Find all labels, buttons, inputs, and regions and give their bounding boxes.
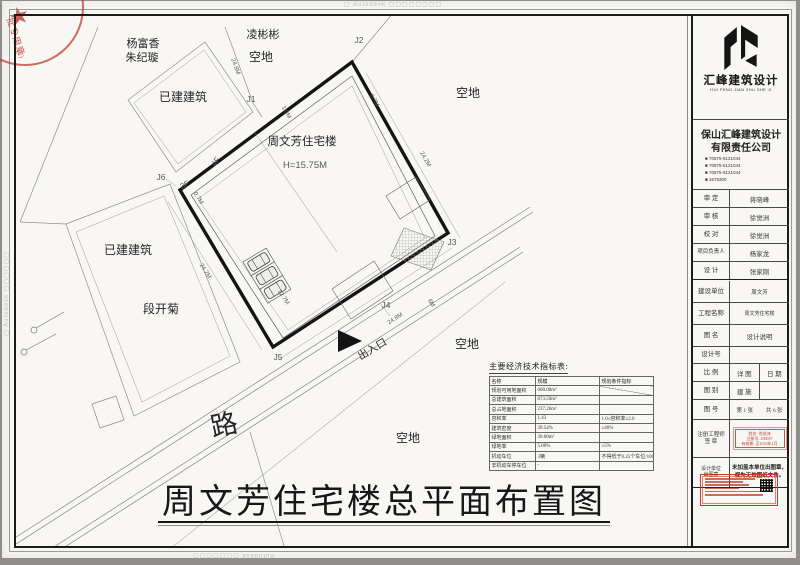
label-building-name: 周文芳住宅楼 [268, 134, 337, 148]
sheet-no-current: 第 1 张 [736, 406, 753, 414]
row-proofreader-label: 校 对 [693, 226, 730, 243]
cert-text-line [705, 481, 743, 483]
qr-code-icon [760, 479, 773, 492]
indicator-cell: 容积率 [490, 414, 536, 423]
row-client-value: 周文芳 [730, 281, 789, 302]
indicator-cell: 规划可用地面积 [490, 386, 536, 395]
point-j1: J1 [247, 94, 256, 104]
indicator-cell: 39.54% [536, 423, 600, 432]
label-existing-building-w: 已建建筑 [104, 242, 152, 257]
indicator-cell [600, 395, 654, 404]
indicator-cell: 30.00m² [536, 433, 600, 442]
title-block: 汇峰建筑设计 HUI FENG JIAN ZHU SHE JI 保山汇峰建筑设计… [691, 16, 787, 546]
logo-cell: 汇峰建筑设计 HUI FENG JIAN ZHU SHE JI [693, 16, 789, 120]
indicator-header-name: 名称 [490, 377, 536, 386]
row-designer-label: 设 计 [693, 262, 730, 279]
label-building-height: H=15.75M [283, 160, 327, 171]
phone-line: ■ 70875-6121044 [705, 156, 741, 163]
sheet-title: 周文芳住宅楼总平面布置图 [158, 474, 610, 523]
engineer-stamp: 姓名: 徐觉洲 注册号: 250037 有效期: 至2016年1月 [730, 420, 789, 457]
dim-south-edge: 24.8M [387, 312, 404, 326]
row-project-lead-value: 杨家龙 [730, 244, 789, 261]
sheet-title-underline [158, 521, 610, 523]
dim-ne-inset: 0.7M [368, 93, 380, 108]
row-sheet-no-label: 图 号 [693, 400, 730, 419]
indicator-cell: 600.00m² [536, 386, 600, 395]
row-reviewer-label: 审 核 [693, 208, 730, 225]
indicator-cell: 总建筑面积 [490, 395, 536, 404]
label-vacant-south-1: 空地 [455, 337, 479, 351]
survey-markers [21, 312, 64, 355]
row-design-no: 设计号 [693, 347, 789, 364]
row-project-name: 工程名称 周文芳住宅楼 [693, 303, 789, 325]
indicator-cell: ≥5% [600, 442, 654, 451]
cert-text-line [705, 494, 763, 496]
row-approver-value: 蒋晓峰 [730, 190, 789, 207]
indicator-table: 主要经济技术指标表: 名称 规模 规划条件指标 规划可用地面积 600.00m²… [489, 356, 657, 471]
logo-name: 汇峰建筑设计 [693, 72, 789, 88]
row-engineer-seal-label: 注册工程师 签 章 [693, 420, 730, 457]
phone-line: ■ 70875-6121044 [705, 163, 741, 170]
indicator-cell: 237.26m² [536, 405, 600, 414]
row-client-label: 建设单位 [693, 281, 730, 302]
point-j2: J2 [355, 35, 364, 45]
row-approver-label: 审 定 [693, 190, 730, 207]
site-boundary [180, 62, 448, 347]
row-proofreader-value: 徐觉洲 [730, 226, 789, 243]
row-project-name-value: 周文芳住宅楼 [730, 303, 789, 324]
indicator-cell [600, 433, 654, 442]
indicator-cell: 不得低于0.25个车位/100m² [600, 452, 654, 461]
label-existing-building-nw: 已建建筑 [159, 89, 207, 104]
indicator-cell: ≤40% [600, 423, 654, 432]
row-scale: 比 例 详 图 日 期 [693, 364, 789, 382]
label-vacant-north: 空地 [249, 50, 273, 64]
cert-text-line [705, 484, 749, 486]
row-engineer-seal: 注册工程师 签 章 姓名: 徐觉洲 注册号: 250037 有效期: 至2016… [693, 420, 789, 458]
row-scale-label: 比 例 [693, 364, 730, 381]
indicator-table-title: 主要经济技术指标表: [489, 361, 568, 374]
cert-text-line [705, 478, 755, 480]
indicator-cell: - [536, 461, 600, 470]
indicator-cell: 1.43 [536, 414, 600, 423]
row-category-extra [760, 382, 790, 399]
label-owner-nw-1: 杨富香 [127, 36, 160, 50]
row-project-lead: 项目负责人 杨家龙 [693, 244, 789, 262]
label-vacant-south-2: 空地 [396, 431, 420, 445]
cert-text-line [705, 488, 739, 490]
label-owner-nw-2: 朱纪璇 [126, 51, 159, 64]
dim-south-inset: 6M [426, 298, 436, 308]
dim-nw-edge: 24.8M [229, 58, 240, 76]
drawing-review-certificate [700, 474, 778, 506]
indicator-cell: 5.00% [536, 442, 600, 451]
engineer-label-line1: 注册工程师 [697, 432, 725, 439]
row-proofreader: 校 对 徐觉洲 [693, 226, 789, 244]
row-designer: 设 计 张家刚 [693, 262, 789, 280]
indicator-cell: 绿地面积 [490, 433, 536, 442]
company-phones: ■ 70875-6121044 ■ 70875-6121044 ■ 70875-… [705, 156, 741, 184]
row-drawing-name: 图 名 设计说明 [693, 325, 789, 347]
row-sheet-no-value: 第 1 张 共 6 张 [730, 400, 789, 419]
row-design-no-label: 设计号 [693, 347, 730, 363]
row-category-label: 图 别 [693, 382, 730, 399]
row-category: 图 别 建 施 [693, 382, 789, 400]
row-client: 建设单位 周文芳 [693, 281, 789, 303]
indicator-cell: 1.0≤容积率≤2.0 [600, 414, 654, 423]
indicator-cell: 绿地率 [490, 442, 536, 451]
row-project-name-label: 工程名称 [693, 303, 730, 324]
point-j4: J4 [382, 300, 391, 310]
phone-line: ■ 70875-6121044 [705, 170, 741, 177]
stamp-line: 有效期: 至2016年1月 [738, 441, 782, 446]
sheet-no-total: 共 6 张 [766, 406, 783, 414]
row-drawing-name-label: 图 名 [693, 325, 730, 346]
company-cell: 保山汇峰建筑设计 有限责任公司 ■ 70875-6121044 ■ 70875-… [693, 120, 789, 190]
row-designer-value: 张家刚 [730, 262, 789, 279]
label-road: 路 [208, 408, 241, 443]
drawing-sheet: ▢ Autodesk ▢▢▢▢▢▢▢▢ ▢ Autodesk ▢▢▢▢▢▢ ▢ … [0, 0, 800, 565]
seal-note-line1: 未加盖本单位出图章， [732, 465, 787, 472]
indicator-cell [600, 405, 654, 414]
engineer-stamp-box: 姓名: 徐觉洲 注册号: 250037 有效期: 至2016年1月 [735, 429, 785, 449]
indicator-cell: 非机动车停车位 [490, 461, 536, 470]
point-j3: J3 [448, 237, 457, 247]
row-project-lead-label: 项目负责人 [693, 244, 730, 261]
label-entrance: 出入口 [355, 335, 389, 362]
label-owner-west: 段开菊 [143, 301, 179, 316]
entrance-arrow-icon [338, 330, 362, 352]
dim-east-edge: 24.2M [418, 151, 432, 168]
row-category-value: 建 施 [730, 382, 760, 399]
logo-subtitle: HUI FENG JIAN ZHU SHE JI [693, 87, 789, 92]
row-scale-detail: 详 图 [730, 364, 760, 381]
engineer-label-line2: 签 章 [705, 439, 717, 446]
huifeng-logo-icon [719, 23, 763, 71]
point-j6: J6 [157, 172, 166, 182]
indicator-cell: 总占地面积 [490, 405, 536, 414]
row-drawing-name-value: 设计说明 [730, 325, 789, 346]
indicator-cell: 机动车位 [490, 452, 536, 461]
indicator-header-scale: 规模 [536, 377, 600, 386]
indicator-cell [600, 461, 654, 470]
dim-west-edge: 24.2M [198, 263, 212, 280]
label-neighbor-north: 凌彬彬 [247, 27, 280, 41]
point-j5: J5 [274, 352, 283, 362]
indicator-cell: 3辆 [536, 452, 600, 461]
sheet-title-underline-shadow [158, 525, 610, 526]
row-reviewer-value: 徐觉洲 [730, 208, 789, 225]
label-vacant-east: 空地 [456, 86, 480, 100]
indicator-cell: 873.59m² [536, 395, 600, 404]
row-approver: 审 定 蒋晓峰 [693, 190, 789, 208]
indicator-cell [600, 386, 654, 395]
row-design-no-value [730, 347, 789, 363]
row-sheet-no: 图 号 第 1 张 共 6 张 [693, 400, 789, 420]
row-reviewer: 审 核 徐觉洲 [693, 208, 789, 226]
company-name-line2: 有限责任公司 [693, 139, 789, 154]
indicator-cell: 建筑密度 [490, 423, 536, 432]
row-scale-date: 日 期 [760, 364, 790, 381]
indicator-header-condition: 规划条件指标 [600, 377, 654, 386]
phone-line: ■ 1678300 [705, 177, 741, 184]
